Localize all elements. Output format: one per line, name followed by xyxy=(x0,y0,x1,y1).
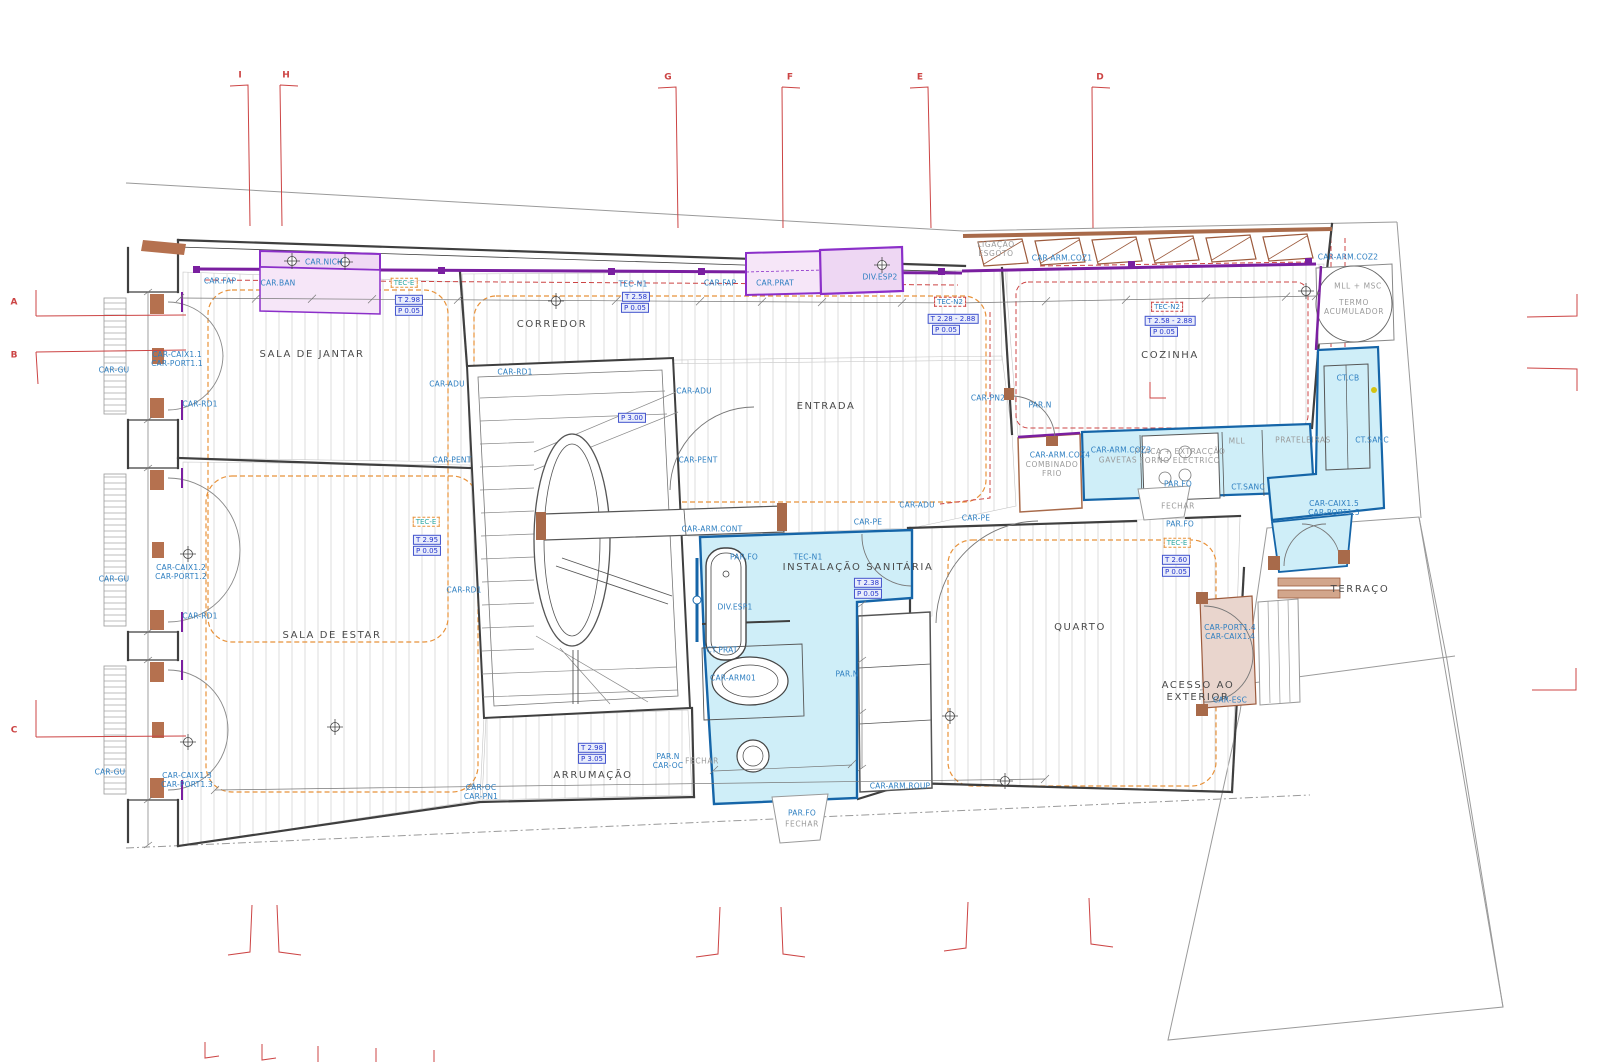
wardrobe xyxy=(858,612,932,792)
floor-plan-drawing xyxy=(0,0,1600,1063)
door-jamb xyxy=(1004,388,1014,400)
door-jamb xyxy=(1046,436,1058,446)
exterior-access-door xyxy=(1196,592,1300,716)
water-heater xyxy=(1316,264,1394,344)
floor-plan-canvas: SALA DE JANTARCORREDORENTRADACOZINHASALA… xyxy=(0,0,1600,1063)
kitchen-upper-cabinets xyxy=(978,234,1313,266)
corner-wood xyxy=(141,240,186,255)
